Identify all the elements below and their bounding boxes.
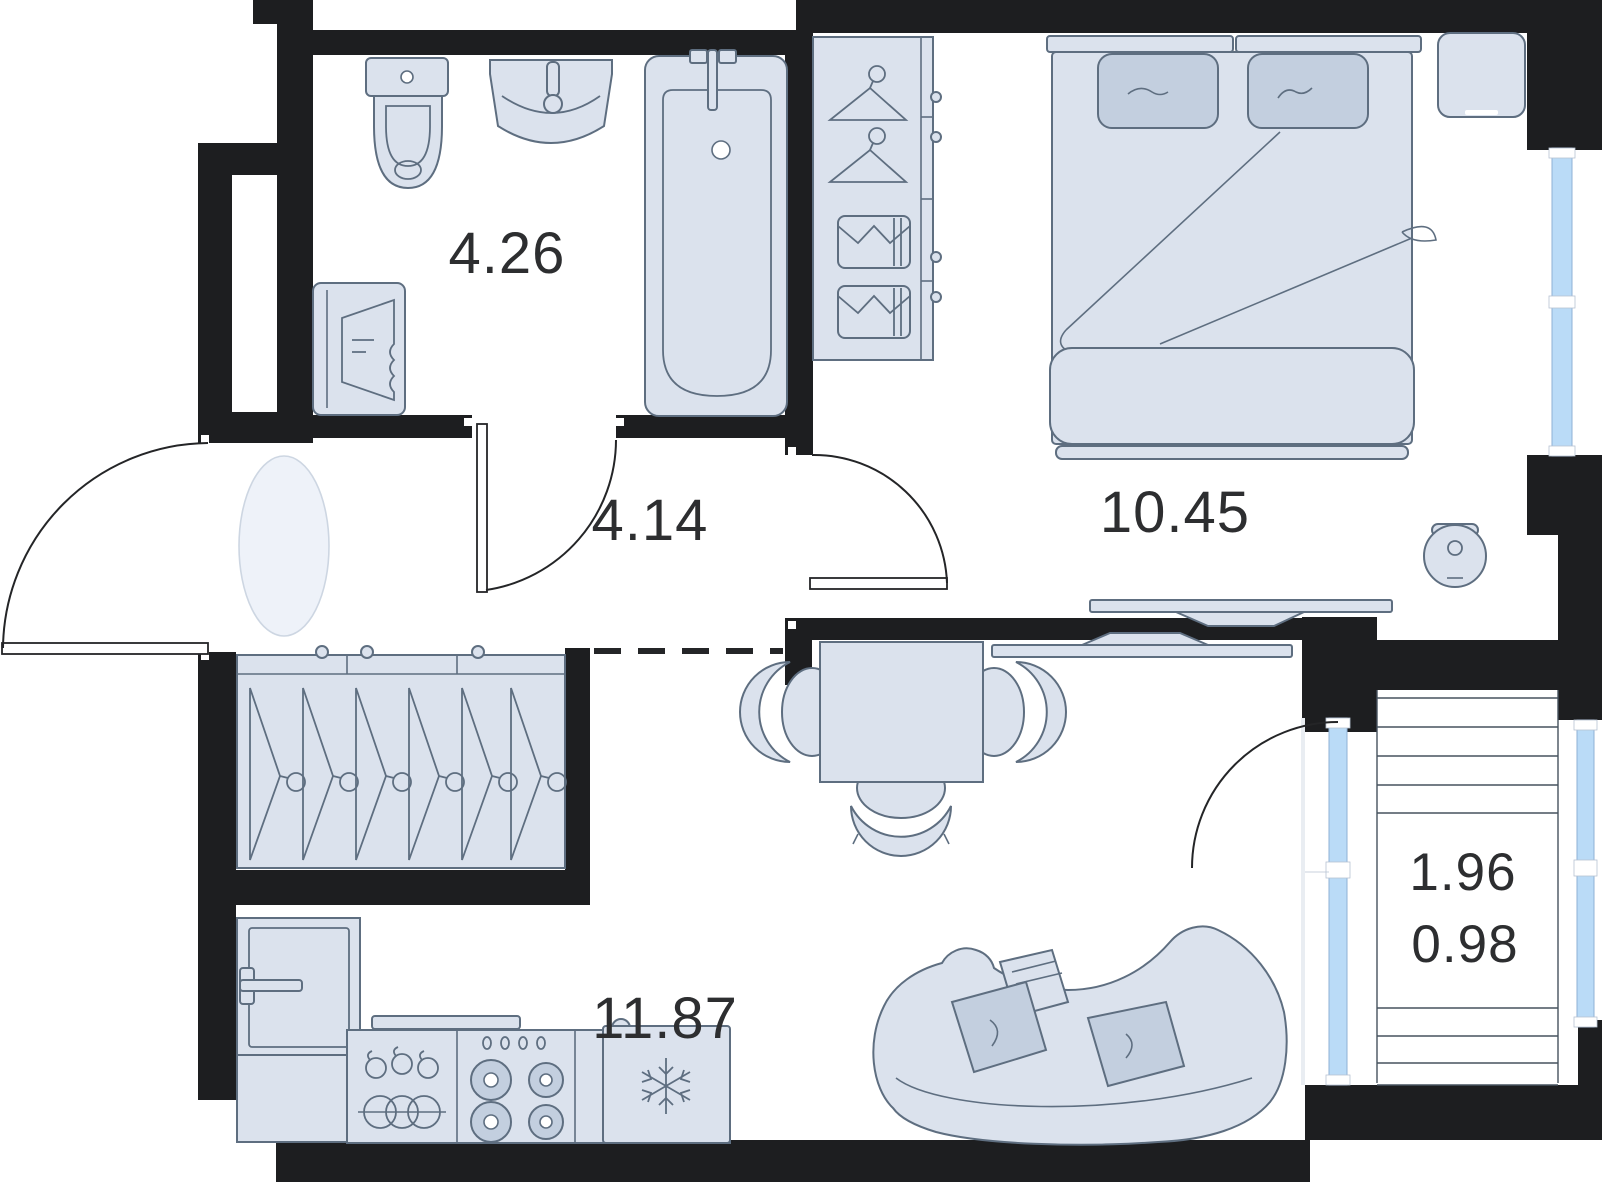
bedroom: 10.45 bbox=[813, 33, 1525, 626]
balcony-inner-glazing bbox=[1301, 718, 1350, 1085]
washing-machine bbox=[313, 283, 405, 415]
hallway: 4.14 bbox=[237, 456, 708, 868]
double-bed bbox=[1047, 36, 1436, 459]
balcony-door-swing bbox=[1192, 722, 1338, 868]
bed-pillow bbox=[1098, 54, 1218, 128]
bedroom-door bbox=[810, 455, 947, 589]
floor-plan-page: 4.26 4.14 bbox=[0, 0, 1602, 1182]
room-label-bedroom: 10.45 bbox=[1100, 480, 1250, 545]
bedroom-window bbox=[1549, 148, 1575, 456]
balcony-area-label: 1.96 bbox=[1409, 843, 1516, 902]
balcony: 1.96 0.98 bbox=[1377, 690, 1558, 1085]
balcony-outer-glazing bbox=[1574, 720, 1597, 1027]
nightstand bbox=[1438, 33, 1525, 117]
toilet bbox=[366, 58, 448, 188]
tall-cabinet bbox=[237, 918, 360, 1142]
entry-wardrobe bbox=[237, 646, 566, 868]
sofa bbox=[873, 926, 1286, 1144]
entry-rug bbox=[239, 456, 329, 636]
room-label-living-kitchen: 11.87 bbox=[592, 986, 738, 1051]
room-label-hallway: 4.14 bbox=[592, 488, 709, 553]
balcony-reduced-area-label: 0.98 bbox=[1411, 915, 1518, 974]
floor-plan: 4.26 4.14 bbox=[0, 0, 1602, 1182]
entrance-door bbox=[2, 443, 208, 654]
bathtub bbox=[645, 50, 787, 416]
room-label-bathroom: 4.26 bbox=[449, 221, 566, 286]
dining-table bbox=[820, 642, 983, 782]
robot-vacuum bbox=[1424, 524, 1486, 587]
bedroom-closet bbox=[813, 37, 941, 360]
sink bbox=[490, 60, 612, 143]
bathroom: 4.26 bbox=[313, 50, 787, 416]
